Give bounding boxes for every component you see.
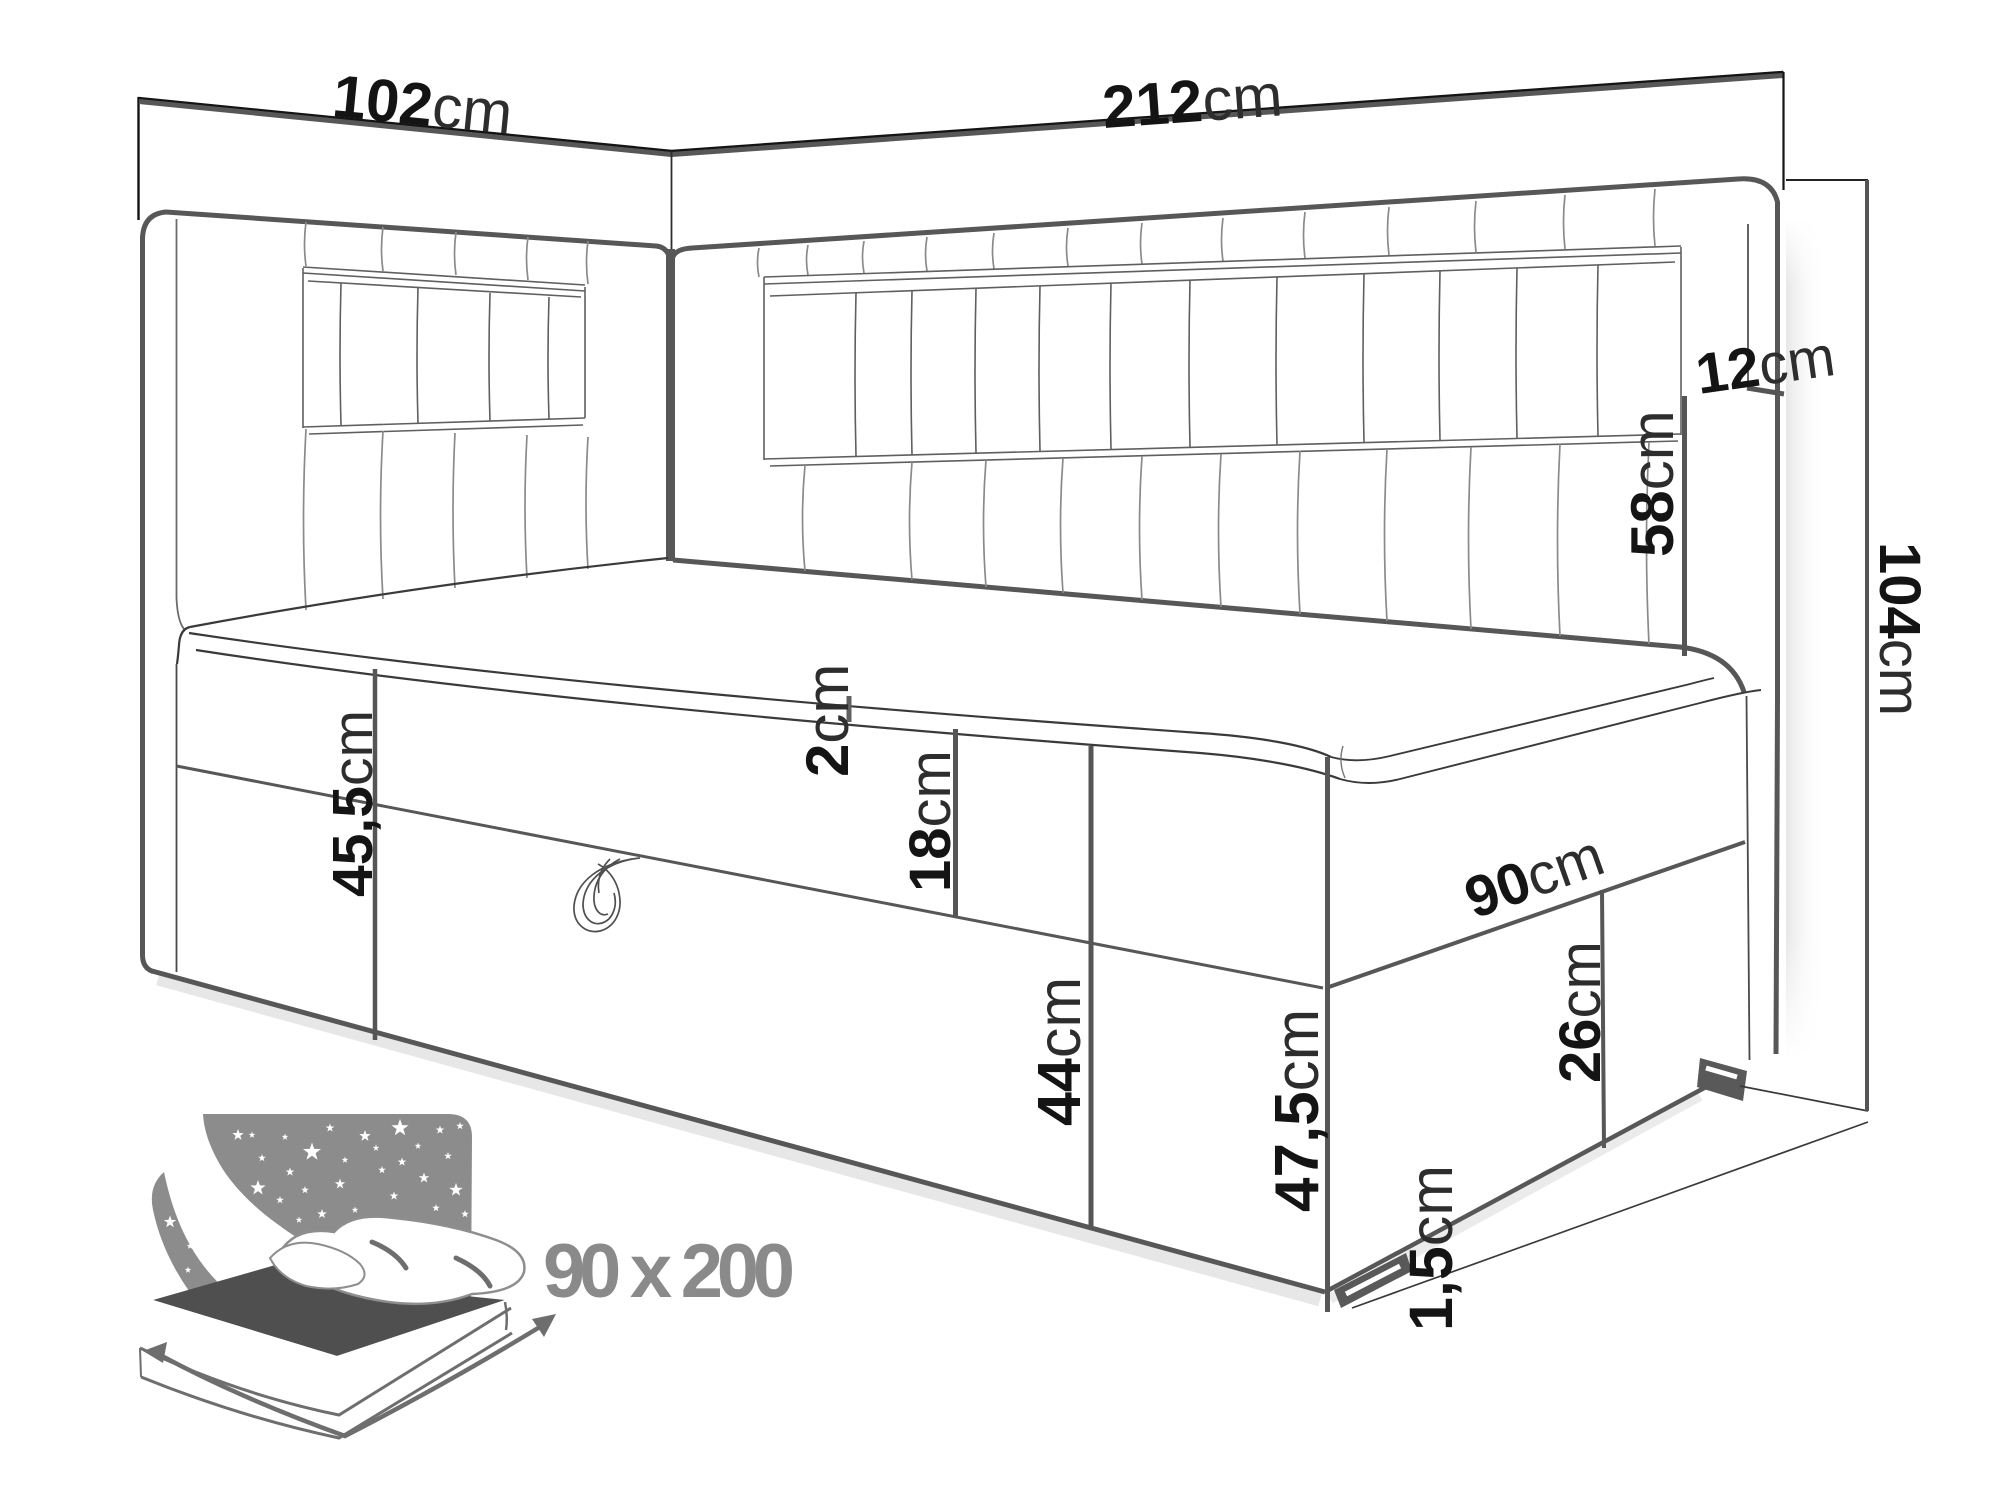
svg-text:212cm: 212cm [1100, 61, 1284, 141]
svg-text:44cm: 44cm [1025, 977, 1093, 1126]
svg-text:47,5cm: 47,5cm [1263, 1009, 1332, 1212]
svg-text:1,5cm: 1,5cm [1397, 1165, 1465, 1331]
svg-text:58cm: 58cm [1619, 410, 1686, 557]
svg-text:2cm: 2cm [794, 664, 861, 777]
svg-text:18cm: 18cm [898, 750, 963, 892]
svg-text:104cm: 104cm [1867, 542, 1932, 716]
svg-text:45,5cm: 45,5cm [321, 710, 385, 897]
svg-text:90 x 200: 90 x 200 [543, 1229, 795, 1314]
svg-text:26cm: 26cm [1548, 941, 1613, 1083]
